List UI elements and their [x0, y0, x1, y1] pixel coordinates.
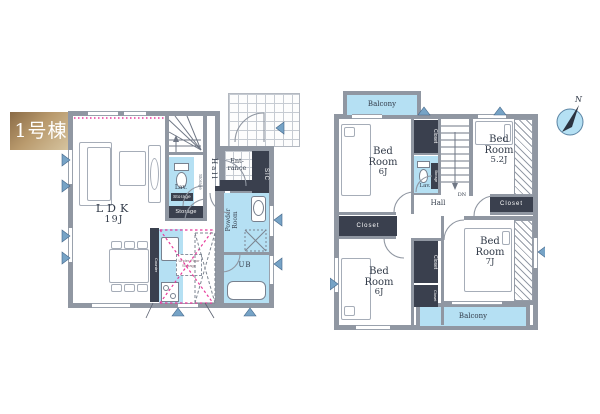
floorplan-page: 1号棟 Storage Storage SIC Counter Under Fl… [0, 0, 600, 414]
compass [552, 95, 596, 141]
stair-treads [441, 126, 469, 190]
compass-north-label: N [575, 96, 582, 105]
stair-treads [169, 116, 201, 152]
window-markers [330, 107, 545, 290]
floor2-annotations [330, 88, 545, 338]
window-markers [62, 122, 284, 316]
floor1-annotations [60, 90, 300, 350]
door-arcs [384, 176, 494, 258]
washer-space [245, 230, 266, 251]
